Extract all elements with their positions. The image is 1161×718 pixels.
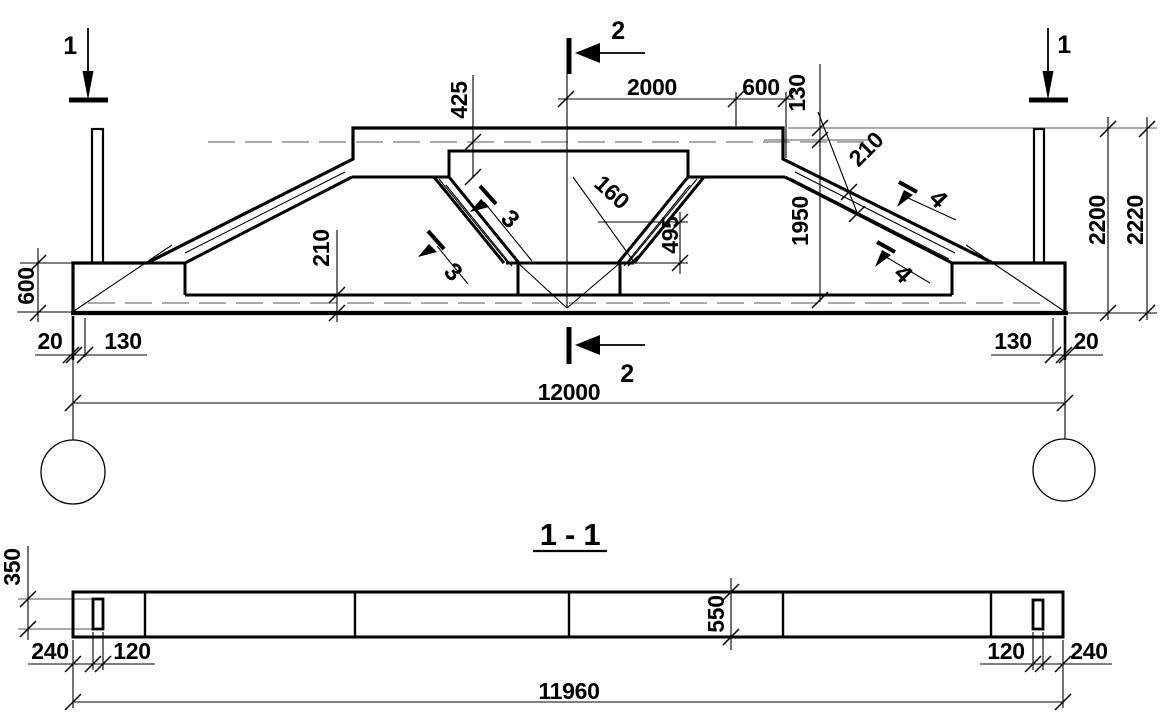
dim-120-right: 120 — [987, 638, 1024, 664]
section-marker-4-upper: 4 — [897, 182, 953, 214]
dim-1950: 1950 — [787, 196, 813, 246]
dim-2220: 2220 — [1122, 195, 1148, 245]
girder-drawing: 1 1 2 2 3 — [0, 0, 1161, 718]
girder-outline — [73, 128, 1065, 313]
dim-130-top: 130 — [784, 74, 810, 111]
dim-425: 425 — [446, 81, 472, 119]
marker-label: 3 — [495, 204, 524, 233]
section-marker-2-top: 2 — [569, 17, 645, 74]
dim-120-left: 120 — [113, 638, 150, 664]
marker-arrow-icon — [83, 71, 94, 100]
marker-arrow-icon — [897, 190, 913, 207]
marker-label: 2 — [620, 360, 634, 388]
dim-240-left: 240 — [31, 638, 68, 664]
dim-600-left: 600 — [13, 267, 39, 304]
marker-label: 4 — [888, 259, 918, 289]
dim-600-top: 600 — [742, 74, 779, 100]
section-title: 1 - 1 — [540, 517, 601, 552]
left-post — [92, 129, 103, 263]
dim-160: 160 — [589, 170, 634, 214]
dim-2000: 2000 — [627, 74, 677, 100]
marker-label: 1 — [63, 32, 77, 60]
marker-bar — [899, 182, 917, 192]
dim-550: 550 — [703, 595, 729, 632]
elevation-view: 1 1 2 2 3 — [13, 17, 1157, 504]
section-view-1-1: 1 - 1 350 240 120 550 120 240 11960 — [0, 517, 1112, 710]
marker-arrow-icon — [575, 335, 600, 355]
marker-bar — [877, 242, 895, 252]
marker-arrow-icon — [418, 244, 437, 257]
section-marker-4-lower: 4 — [875, 242, 918, 289]
right-post — [1034, 129, 1044, 263]
grid-bubble-right — [1033, 439, 1095, 501]
dim-495: 495 — [657, 216, 683, 254]
grid-bubble-left — [41, 440, 105, 504]
aux-extension-lines — [764, 128, 1157, 140]
marker-arrow-icon — [1043, 71, 1054, 100]
section-marker-3-lower: 3 — [418, 231, 468, 287]
dim-2200: 2200 — [1084, 195, 1110, 245]
left-hole — [93, 599, 103, 629]
dimension-ticks — [30, 91, 1155, 411]
marker-label: 4 — [923, 184, 953, 214]
aux-extension-lines-section — [18, 599, 93, 629]
section-marker-1-left: 1 — [63, 28, 108, 100]
section-bar-dividers — [145, 592, 991, 637]
dim-11960: 11960 — [538, 678, 599, 704]
marker-label: 2 — [611, 17, 625, 45]
dim-20-left: 20 — [38, 328, 63, 354]
girder-internal-edges — [147, 151, 993, 295]
dim-130-right: 130 — [994, 328, 1031, 354]
dim-12000: 12000 — [538, 379, 600, 405]
marker-arrow-icon — [575, 43, 600, 63]
dim-350: 350 — [0, 548, 25, 585]
section-marker-1-right: 1 — [1029, 28, 1071, 100]
dim-240-right: 240 — [1070, 638, 1107, 664]
dim-130-left: 130 — [104, 328, 141, 354]
right-hole — [1033, 600, 1043, 629]
dim-20-right: 20 — [1074, 328, 1099, 354]
dim-210-chord: 210 — [308, 229, 334, 266]
marker-label: 1 — [1057, 31, 1071, 59]
dim-210-haunch: 210 — [844, 127, 889, 172]
marker-label: 3 — [438, 257, 467, 286]
drawing-canvas: 1 1 2 2 3 — [0, 0, 1161, 718]
